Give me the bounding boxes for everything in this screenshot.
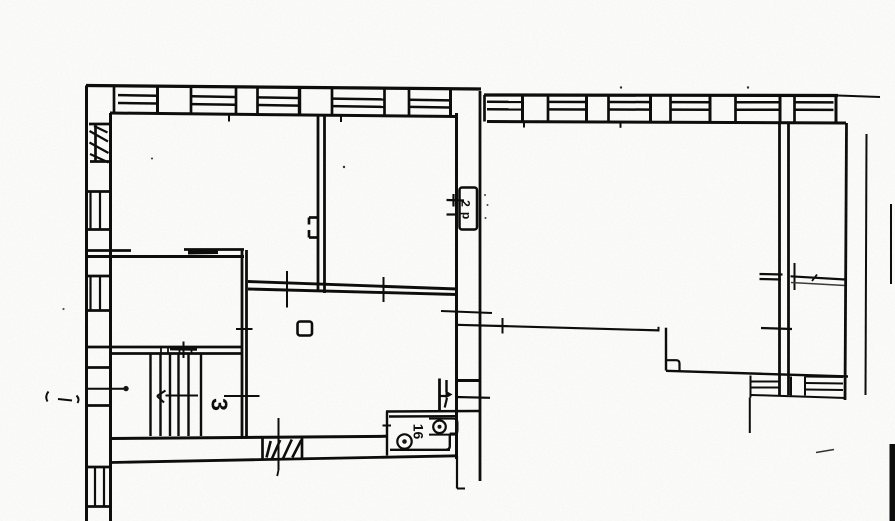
svg-text:3: 3 bbox=[207, 398, 233, 411]
svg-text:2: 2 bbox=[459, 200, 473, 207]
svg-text:p: p bbox=[460, 212, 474, 219]
svg-text:16: 16 bbox=[411, 424, 427, 440]
